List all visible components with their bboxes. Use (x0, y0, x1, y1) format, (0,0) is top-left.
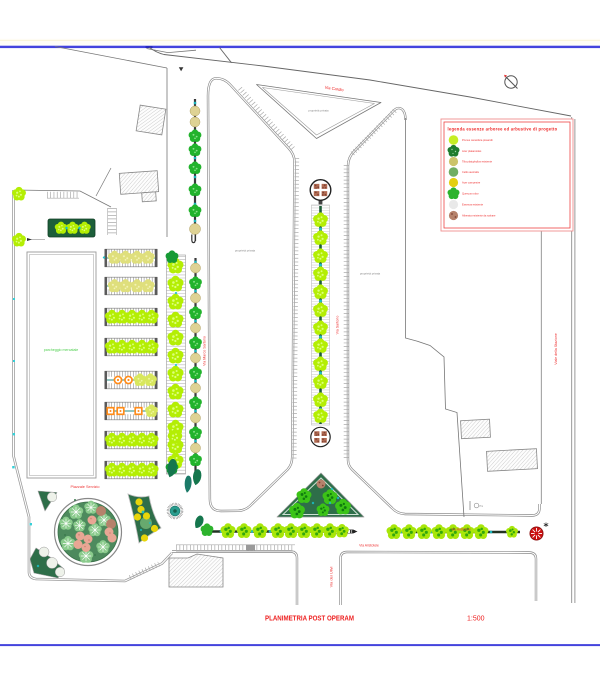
svg-text:Alberata esistente da salvare: Alberata esistente da salvare (462, 214, 496, 218)
svg-text:PLANIMETRIA POST OPERAM: PLANIMETRIA POST OPERAM (265, 614, 354, 623)
svg-text:1:500: 1:500 (467, 616, 485, 623)
svg-text:proprietà privata: proprietà privata (308, 109, 329, 113)
svg-text:Celtis australis: Celtis australis (462, 170, 480, 174)
svg-text:Via Aristotele: Via Aristotele (451, 528, 471, 532)
svg-text:parcheggio mercatale: parcheggio mercatale (44, 348, 79, 352)
svg-text:Piazzale Servizio: Piazzale Servizio (71, 485, 100, 489)
svg-text:Pm: Pm (480, 505, 484, 508)
svg-text:Prunus cerasifera pissardii: Prunus cerasifera pissardii (462, 138, 493, 142)
svg-text:Acer campestre: Acer campestre (462, 181, 481, 185)
svg-text:Tilia platyphyllos esistente: Tilia platyphyllos esistente (462, 160, 493, 164)
svg-text:Via Aristotele: Via Aristotele (359, 544, 379, 548)
svg-text:proprietà privata: proprietà privata (235, 249, 256, 253)
svg-text:Essenza esistente: Essenza esistente (462, 203, 484, 207)
svg-text:Via dei Ulivi: Via dei Ulivi (329, 566, 334, 587)
svg-text:Viale della Stazione: Viale della Stazione (554, 333, 558, 365)
svg-text:Acer platanoides: Acer platanoides (462, 149, 482, 153)
svg-text:legenda essenze arboree ed arb: legenda essenze arboree ed arbustive di … (448, 127, 558, 132)
svg-text:Via Sartorio: Via Sartorio (336, 316, 340, 335)
svg-text:proprietà privata: proprietà privata (360, 272, 381, 276)
svg-text:Quercus robur: Quercus robur (462, 192, 479, 196)
svg-text:Via Marco Sartorio: Via Marco Sartorio (203, 336, 207, 366)
